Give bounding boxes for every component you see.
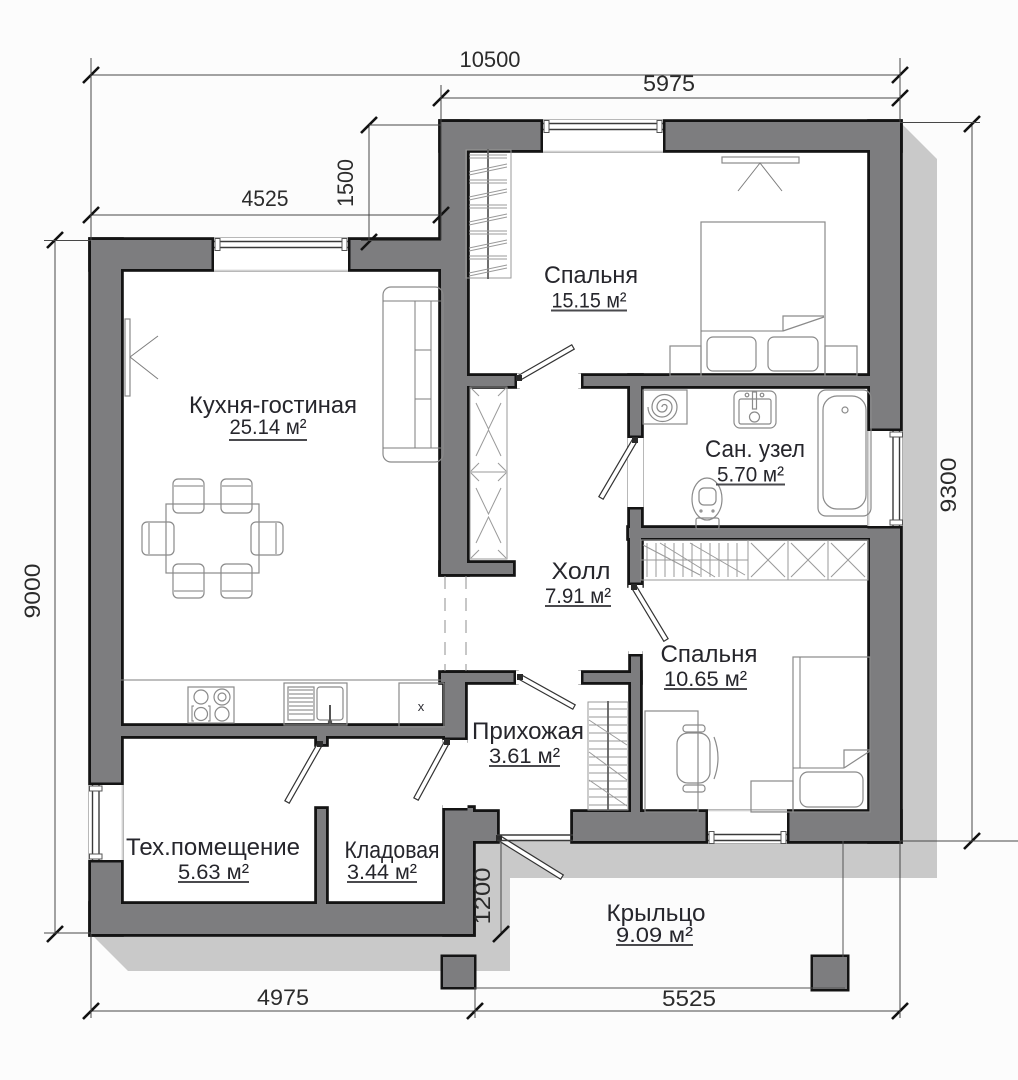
svg-text:5.63 м²: 5.63 м²	[178, 860, 249, 884]
svg-text:1200: 1200	[470, 868, 495, 925]
svg-text:9.09 м²: 9.09 м²	[616, 923, 693, 947]
svg-text:Спальня: Спальня	[661, 641, 758, 668]
svg-text:5525: 5525	[662, 986, 716, 1011]
svg-text:Прихожая: Прихожая	[472, 718, 584, 745]
svg-text:х: х	[418, 699, 425, 714]
svg-text:Сан. узел: Сан. узел	[705, 436, 805, 463]
svg-text:5975: 5975	[643, 71, 695, 96]
svg-text:4525: 4525	[242, 186, 289, 211]
svg-text:Холл: Холл	[552, 558, 611, 585]
svg-text:3.61 м²: 3.61 м²	[489, 744, 560, 768]
svg-text:15.15 м²: 15.15 м²	[552, 289, 627, 313]
svg-text:Тех.помещение: Тех.помещение	[126, 834, 300, 861]
svg-text:5.70 м²: 5.70 м²	[717, 463, 784, 487]
svg-text:10.65 м²: 10.65 м²	[664, 667, 747, 691]
svg-text:9300: 9300	[936, 458, 961, 513]
svg-text:1500: 1500	[333, 159, 358, 207]
svg-text:9000: 9000	[20, 564, 45, 619]
svg-text:10500: 10500	[460, 47, 521, 72]
svg-text:25.14 м²: 25.14 м²	[230, 415, 307, 439]
svg-text:7.91 м²: 7.91 м²	[545, 584, 611, 608]
svg-text:Спальня: Спальня	[544, 262, 638, 289]
svg-text:3.44 м²: 3.44 м²	[347, 860, 417, 884]
svg-text:4975: 4975	[257, 985, 309, 1010]
